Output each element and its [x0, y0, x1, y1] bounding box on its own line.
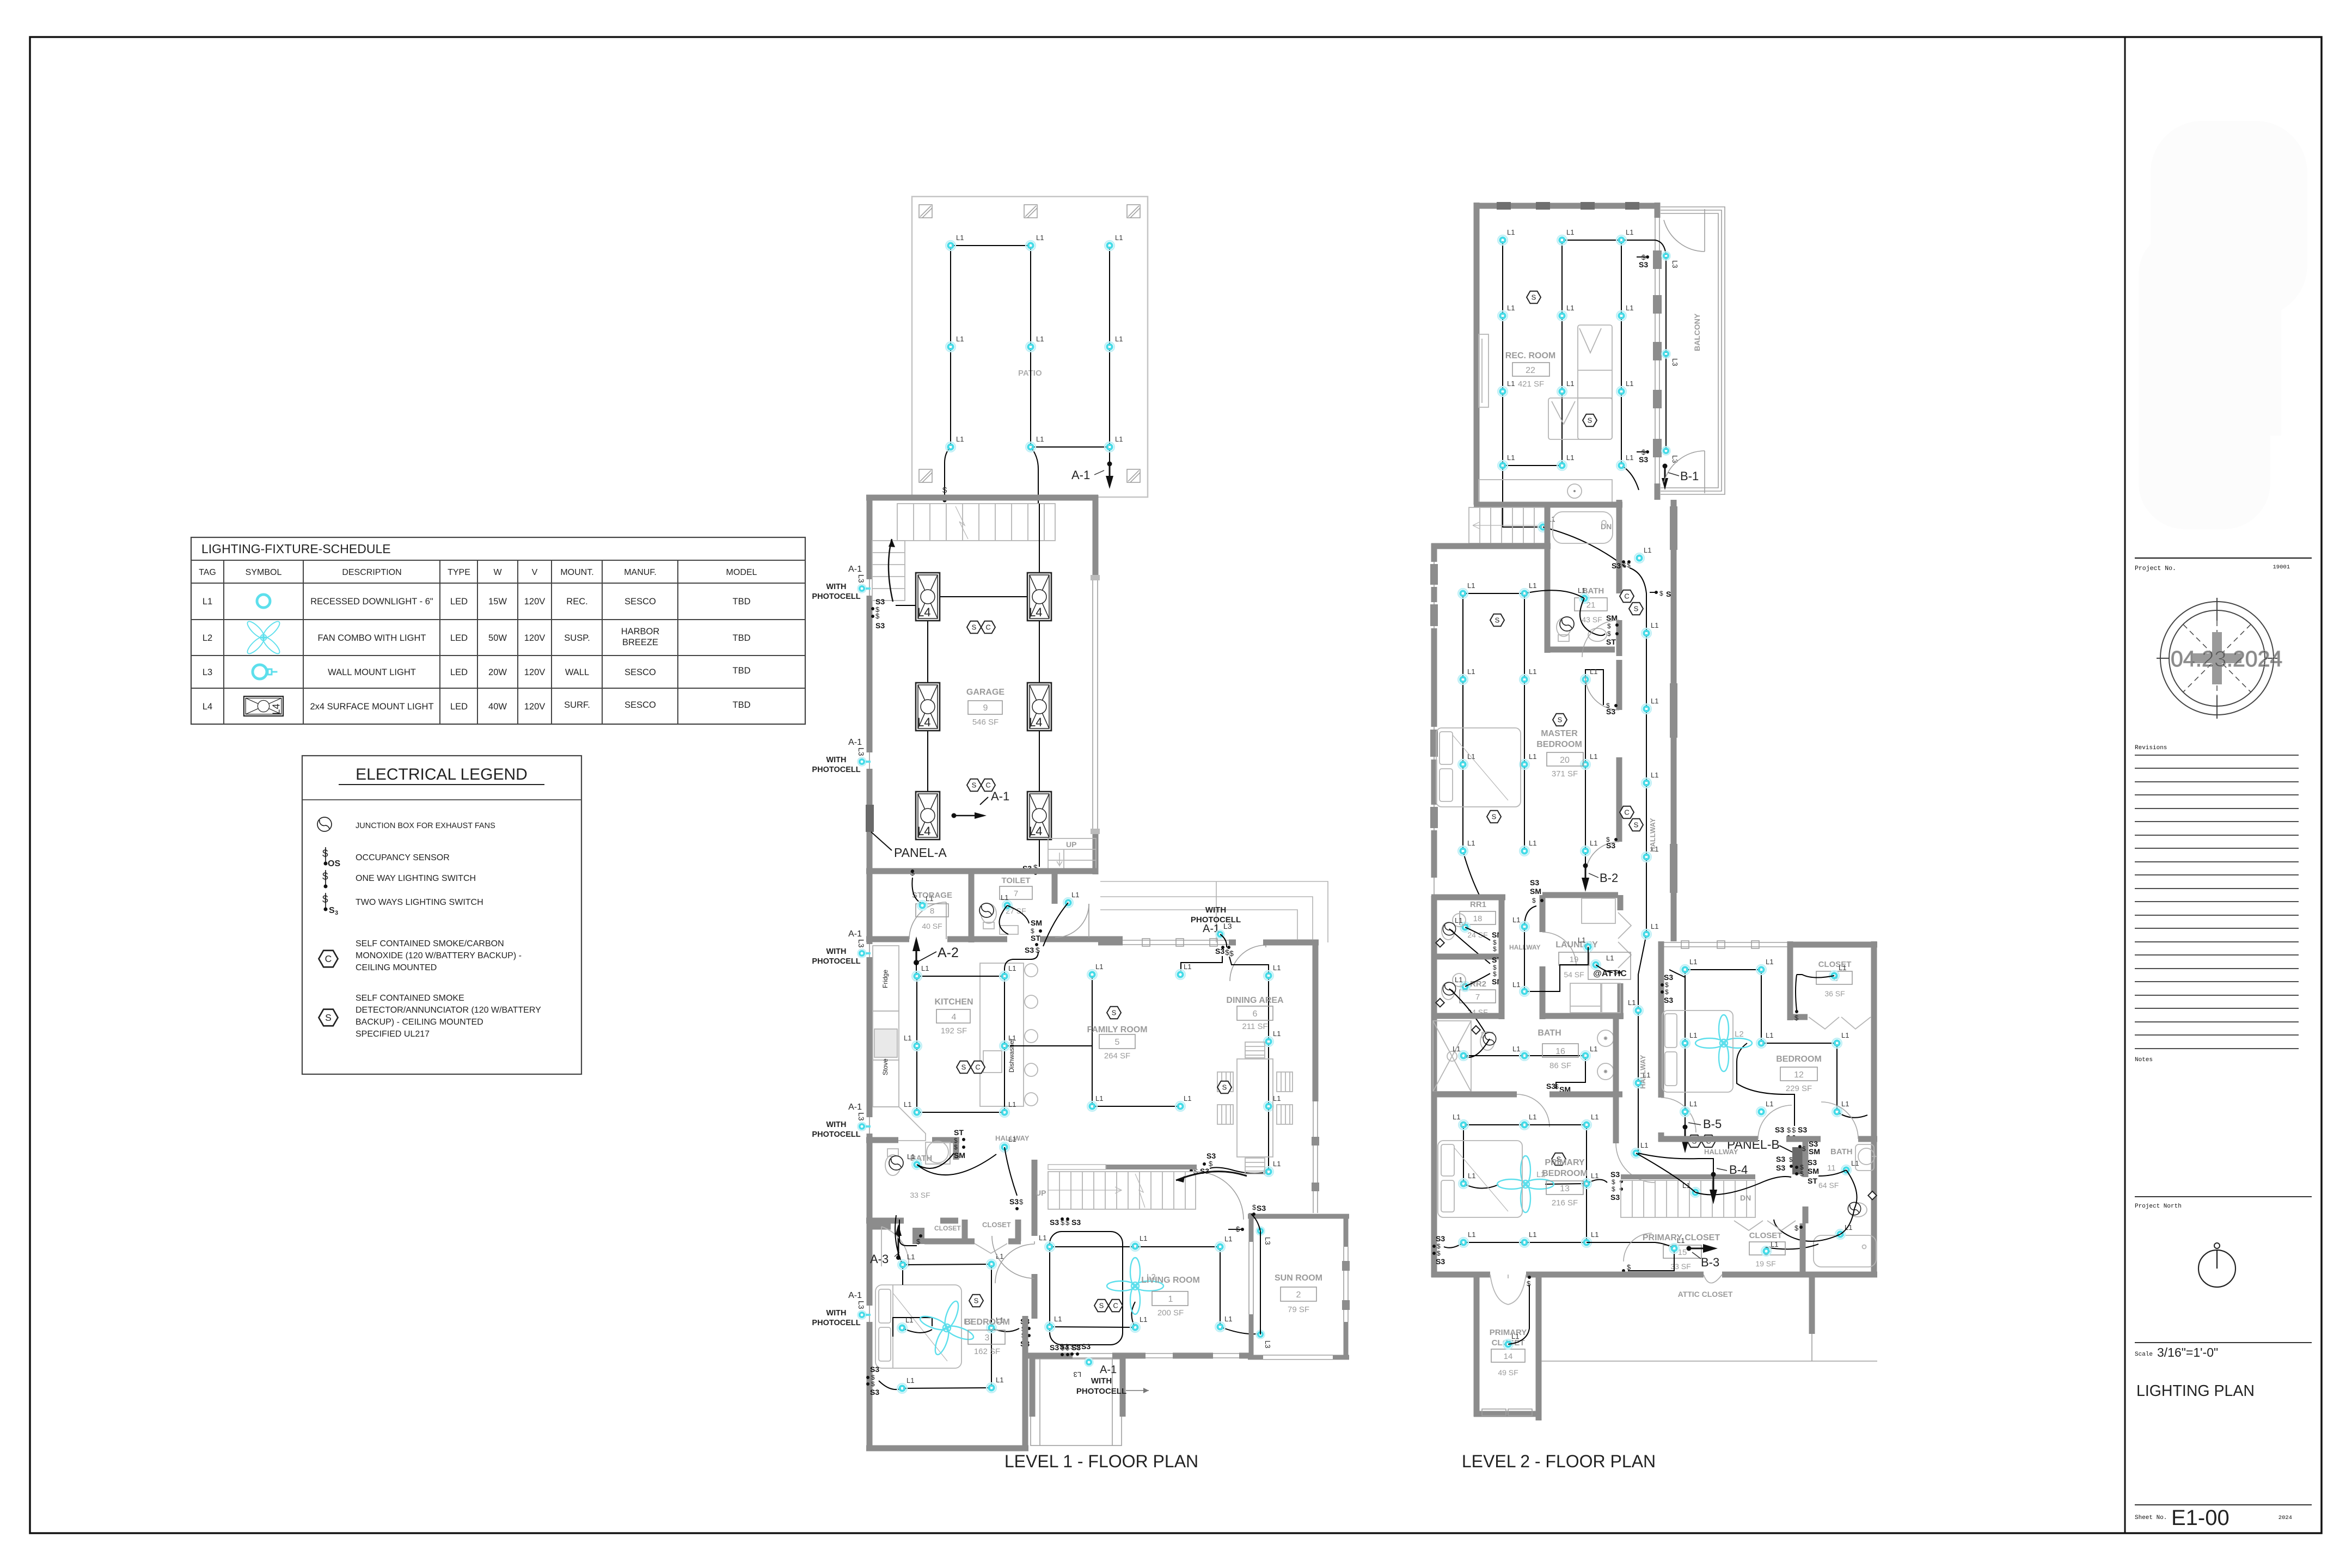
svg-text:L1: L1 [926, 895, 933, 903]
svg-text:L3: L3 [1074, 1370, 1081, 1379]
svg-text:7: 7 [1014, 889, 1018, 898]
svg-text:SM: SM [1809, 1147, 1820, 1156]
svg-text:79 SF: 79 SF [1288, 1305, 1309, 1314]
svg-text:SESCO: SESCO [624, 597, 656, 607]
svg-text:L3: L3 [1671, 455, 1679, 463]
svg-text:B-5: B-5 [1703, 1117, 1722, 1131]
svg-text:A-1: A-1 [1071, 468, 1090, 482]
svg-text:421 SF: 421 SF [1518, 379, 1544, 389]
svg-text:MASTER: MASTER [1541, 729, 1578, 738]
svg-text:BALCONY: BALCONY [1693, 313, 1701, 351]
svg-text:120V: 120V [524, 633, 546, 643]
svg-text:MANUF.: MANUF. [624, 568, 657, 577]
svg-text:L1: L1 [1036, 234, 1044, 242]
svg-text:$: $ [1607, 630, 1611, 638]
svg-text:L1: L1 [1468, 1230, 1475, 1239]
svg-text:Revisions: Revisions [2135, 745, 2167, 751]
svg-text:L1: L1 [956, 335, 964, 343]
svg-text:$: $ [1606, 836, 1610, 843]
svg-text:BATH: BATH [1538, 1028, 1561, 1038]
svg-text:L1: L1 [1511, 1332, 1519, 1340]
svg-text:S3: S3 [1664, 973, 1673, 982]
svg-text:L3: L3 [1671, 260, 1679, 268]
svg-text:TBD: TBD [733, 597, 751, 607]
svg-text:40 SF: 40 SF [922, 922, 942, 930]
svg-text:TBD: TBD [733, 633, 751, 643]
svg-text:WITH: WITH [826, 756, 846, 764]
svg-text:$: $ [1019, 1198, 1024, 1206]
svg-text:WITH: WITH [826, 1120, 846, 1129]
svg-text:S3: S3 [875, 597, 885, 606]
svg-text:16: 16 [1555, 1047, 1565, 1056]
svg-text:LED: LED [450, 633, 468, 643]
svg-text:B-4: B-4 [1729, 1163, 1748, 1177]
svg-text:$: $ [1437, 1249, 1441, 1257]
svg-text:L1: L1 [1529, 752, 1536, 761]
svg-text:L1: L1 [1455, 916, 1462, 924]
svg-text:MODEL: MODEL [726, 568, 757, 577]
svg-text:546 SF: 546 SF [972, 718, 999, 727]
svg-text:SYMBOL: SYMBOL [246, 568, 282, 577]
svg-text:$: $ [1209, 1160, 1213, 1168]
svg-text:L1: L1 [1036, 335, 1044, 343]
svg-text:SESCO: SESCO [624, 700, 656, 710]
svg-text:L1: L1 [956, 435, 964, 443]
svg-text:DINING AREA: DINING AREA [1226, 996, 1284, 1005]
svg-text:L1: L1 [1529, 667, 1536, 676]
svg-text:A-1: A-1 [848, 738, 862, 747]
svg-text:DN: DN [1740, 1193, 1751, 1202]
svg-text:JUNCTION BOX FOR EXHAUST FANS: JUNCTION BOX FOR EXHAUST FANS [356, 822, 495, 830]
svg-text:229 SF: 229 SF [1786, 1084, 1812, 1093]
svg-text:S3: S3 [1436, 1257, 1445, 1266]
svg-text:S3: S3 [1257, 1204, 1266, 1212]
svg-text:BEDROOM: BEDROOM [1536, 740, 1582, 749]
svg-text:40W: 40W [488, 702, 507, 712]
svg-text:L1: L1 [1841, 1031, 1849, 1039]
svg-text:L3: L3 [857, 1301, 866, 1309]
svg-text:$: $ [1612, 1178, 1615, 1186]
svg-text:8: 8 [930, 906, 934, 916]
svg-text:L1: L1 [1467, 581, 1475, 590]
svg-text:SM: SM [1530, 887, 1541, 896]
svg-text:BEDROOM: BEDROOM [1542, 1169, 1588, 1178]
svg-text:L1: L1 [1115, 234, 1123, 242]
svg-text:ST: ST [1031, 934, 1040, 942]
svg-text:L2: L2 [203, 633, 212, 643]
svg-text:S3: S3 [1025, 946, 1034, 954]
svg-text:L3: L3 [857, 748, 866, 756]
svg-text:$: $ [1794, 1014, 1799, 1022]
svg-text:$: $ [1612, 1185, 1615, 1193]
svg-text:20W: 20W [488, 667, 507, 677]
svg-text:1: 1 [1168, 1295, 1173, 1304]
svg-text:$: $ [1627, 1263, 1631, 1271]
svg-text:L1: L1 [1626, 379, 1633, 388]
svg-text:L1: L1 [1689, 1100, 1697, 1108]
svg-text:ST: ST [1606, 638, 1616, 646]
svg-text:L1: L1 [1224, 1235, 1232, 1243]
svg-text:162 SF: 162 SF [974, 1347, 1000, 1356]
svg-text:L1: L1 [1651, 621, 1658, 629]
svg-text:L1: L1 [1766, 958, 1773, 966]
svg-text:REC.: REC. [566, 597, 587, 607]
svg-text:E1-00: E1-00 [2171, 1506, 2229, 1530]
svg-text:PHOTOCELL: PHOTOCELL [1076, 1387, 1126, 1396]
svg-text:L1: L1 [1507, 454, 1515, 462]
svg-text:$: $ [1614, 969, 1618, 976]
svg-text:L1: L1 [1644, 546, 1651, 554]
svg-text:L3: L3 [1223, 922, 1232, 930]
svg-text:$: $ [1802, 1145, 1806, 1153]
svg-text:WITH: WITH [826, 1309, 846, 1318]
svg-text:BREEZE: BREEZE [622, 638, 658, 647]
svg-text:S3: S3 [1610, 1193, 1620, 1202]
svg-text:L1: L1 [1507, 379, 1515, 388]
svg-text:HALLWAY: HALLWAY [1639, 1055, 1647, 1089]
svg-text:$: $ [1532, 897, 1536, 904]
svg-text:PHOTOCELL: PHOTOCELL [812, 1319, 860, 1327]
svg-text:TOILET: TOILET [1001, 876, 1030, 885]
svg-text:L1: L1 [1766, 1031, 1773, 1039]
svg-text:RECESSED DOWNLIGHT - 6": RECESSED DOWNLIGHT - 6" [310, 597, 433, 607]
svg-text:L1: L1 [1273, 1030, 1281, 1038]
svg-text:$: $ [1794, 1224, 1799, 1232]
svg-text:S3: S3 [1071, 1218, 1081, 1227]
svg-text:S3: S3 [1612, 561, 1621, 570]
svg-text:22: 22 [1526, 366, 1535, 375]
svg-text:20: 20 [1560, 756, 1570, 765]
svg-text:L1: L1 [1689, 958, 1697, 966]
svg-text:192 SF: 192 SF [941, 1026, 967, 1036]
svg-text:LED: LED [450, 667, 468, 677]
svg-text:L1: L1 [1008, 1100, 1016, 1108]
svg-text:L1: L1 [1591, 1230, 1598, 1239]
svg-text:L1: L1 [1689, 1031, 1697, 1039]
svg-text:L1: L1 [1512, 916, 1520, 924]
svg-text:WITH: WITH [1091, 1376, 1112, 1386]
svg-text:A-1: A-1 [848, 1291, 862, 1300]
svg-text:L1: L1 [905, 1316, 913, 1324]
svg-text:S3: S3 [870, 1388, 879, 1396]
svg-text:B-2: B-2 [1600, 871, 1618, 885]
svg-text:L1: L1 [1008, 964, 1016, 972]
svg-text:L1: L1 [1008, 1135, 1016, 1143]
svg-text:L1: L1 [1140, 1315, 1147, 1324]
svg-text:L1: L1 [1529, 1230, 1536, 1239]
svg-text:RR1: RR1 [1470, 900, 1486, 909]
svg-text:L1: L1 [1453, 1045, 1460, 1053]
svg-text:L1: L1 [1771, 1240, 1778, 1248]
svg-text:L1: L1 [1008, 1034, 1016, 1042]
svg-text:S3: S3 [1776, 1155, 1785, 1163]
svg-text:5: 5 [1115, 1038, 1120, 1047]
svg-text:L1: L1 [956, 234, 964, 242]
svg-text:PHOTOCELL: PHOTOCELL [812, 957, 860, 966]
svg-text:12: 12 [1794, 1070, 1804, 1080]
svg-text:L1: L1 [1529, 839, 1536, 847]
svg-text:B-1: B-1 [1680, 469, 1699, 483]
svg-text:S3: S3 [870, 1365, 879, 1374]
svg-text:S3: S3 [1436, 1234, 1445, 1243]
svg-text:14: 14 [1504, 1352, 1513, 1361]
svg-text:L1: L1 [907, 1253, 915, 1261]
svg-text:LED: LED [450, 702, 468, 712]
svg-text:L1: L1 [1590, 752, 1597, 761]
svg-text:L1: L1 [1071, 891, 1079, 899]
svg-text:CEILING MOUNTED: CEILING MOUNTED [356, 963, 437, 972]
svg-text:13: 13 [1560, 1184, 1570, 1193]
svg-text:$: $ [875, 612, 880, 620]
svg-text:L1: L1 [906, 1376, 914, 1385]
svg-text:L1: L1 [904, 1100, 911, 1108]
svg-text:L1: L1 [1651, 771, 1658, 779]
svg-text:L1: L1 [1095, 1094, 1103, 1102]
svg-text:PHOTOCELL: PHOTOCELL [812, 592, 860, 601]
svg-text:L1: L1 [1529, 581, 1536, 590]
svg-text:$: $ [322, 871, 328, 883]
svg-text:L1: L1 [203, 597, 212, 607]
svg-text:GARAGE: GARAGE [966, 688, 1005, 697]
svg-text:A-1: A-1 [1100, 1364, 1117, 1376]
svg-text:PATIO: PATIO [1018, 369, 1042, 378]
svg-text:$: $ [1437, 1242, 1441, 1250]
svg-text:L1: L1 [1590, 667, 1597, 676]
svg-text:LED: LED [450, 597, 468, 607]
svg-text:3: 3 [985, 1333, 990, 1343]
svg-text:CLOSET: CLOSET [934, 1224, 961, 1232]
svg-text:L1: L1 [1273, 1094, 1281, 1102]
svg-text:211 SF: 211 SF [1242, 1022, 1267, 1031]
svg-text:HALLWAY: HALLWAY [1649, 818, 1657, 852]
svg-text:L1: L1 [1273, 1160, 1281, 1168]
svg-text:120V: 120V [524, 702, 546, 712]
svg-text:A-1: A-1 [991, 789, 1009, 803]
svg-text:ST: ST [954, 1128, 964, 1137]
svg-text:S3: S3 [1639, 260, 1648, 269]
svg-text:CLOSET: CLOSET [982, 1221, 1011, 1229]
svg-text:L1: L1 [1626, 454, 1633, 462]
svg-text:L1: L1 [1590, 839, 1597, 847]
svg-text:L1: L1 [1766, 1100, 1773, 1108]
svg-text:V: V [532, 568, 538, 577]
svg-text:54 SF: 54 SF [1564, 970, 1584, 979]
svg-text:L1: L1 [1095, 963, 1103, 971]
svg-text:L1: L1 [1529, 1113, 1536, 1121]
svg-text:$: $ [1493, 970, 1497, 978]
svg-text:A-2: A-2 [938, 945, 959, 960]
svg-text:MOUNT.: MOUNT. [560, 568, 593, 577]
svg-text:$: $ [942, 486, 947, 495]
svg-text:S3: S3 [1808, 1158, 1817, 1167]
svg-text:L1: L1 [1591, 1172, 1598, 1180]
svg-text:L1: L1 [1841, 1100, 1849, 1108]
svg-text:LIGHTING PLAN: LIGHTING PLAN [2136, 1382, 2255, 1400]
svg-text:A-1: A-1 [848, 1102, 862, 1112]
svg-text:18: 18 [1473, 914, 1483, 923]
svg-text:L3: L3 [857, 1112, 866, 1121]
svg-text:L1: L1 [1628, 999, 1636, 1007]
svg-text:19: 19 [1570, 955, 1579, 964]
svg-text:DESCRIPTION: DESCRIPTION [342, 568, 401, 577]
svg-text:LIGHTING-FIXTURE-SCHEDULE: LIGHTING-FIXTURE-SCHEDULE [201, 542, 391, 556]
svg-text:L1: L1 [1677, 1236, 1685, 1245]
svg-text:$: $ [1665, 981, 1669, 989]
svg-text:DETECTOR/ANNUNCIATOR (120 W/BA: DETECTOR/ANNUNCIATOR (120 W/BATTERY [356, 1006, 541, 1015]
svg-text:L3: L3 [857, 574, 866, 583]
svg-text:$: $ [1493, 945, 1497, 953]
svg-text:$: $ [1665, 988, 1669, 996]
svg-text:S3: S3 [1050, 1218, 1059, 1227]
svg-text:ELECTRICAL LEGEND: ELECTRICAL LEGEND [356, 765, 528, 783]
svg-text:TBD: TBD [733, 666, 751, 676]
svg-text:LEVEL 1 - FLOOR PLAN: LEVEL 1 - FLOOR PLAN [1004, 1451, 1198, 1471]
svg-text:L1: L1 [1001, 893, 1008, 902]
svg-text:LEVEL 2 - FLOOR PLAN: LEVEL 2 - FLOOR PLAN [1462, 1451, 1656, 1471]
svg-text:Project North: Project North [2135, 1203, 2182, 1210]
svg-text:43 SF: 43 SF [1582, 615, 1602, 624]
svg-text:Fridge: Fridge [881, 970, 889, 988]
svg-text:FAMILY ROOM: FAMILY ROOM [1087, 1025, 1147, 1034]
svg-text:9: 9 [983, 703, 988, 713]
svg-text:Stove: Stove [881, 1058, 889, 1075]
svg-text:L1: L1 [1467, 667, 1475, 676]
svg-text:15W: 15W [488, 597, 507, 607]
svg-text:SESCO: SESCO [624, 667, 656, 677]
svg-text:WALL: WALL [565, 667, 589, 677]
svg-text:$: $ [1555, 1083, 1559, 1091]
svg-text:Scale: Scale [2135, 1351, 2153, 1358]
svg-text:PRIMARY: PRIMARY [1490, 1328, 1527, 1337]
svg-text:WITH: WITH [1205, 905, 1226, 915]
svg-text:S3: S3 [1200, 1167, 1209, 1175]
svg-text:L1: L1 [1468, 1172, 1475, 1180]
svg-text:$: $ [916, 1238, 921, 1246]
svg-text:WITH: WITH [826, 583, 846, 591]
svg-text:A-1: A-1 [1203, 923, 1220, 935]
svg-text:$: $ [1070, 1343, 1075, 1351]
svg-text:L1: L1 [1566, 379, 1574, 388]
svg-text:S3: S3 [1546, 1082, 1555, 1091]
svg-text:L1: L1 [1054, 1315, 1062, 1323]
svg-text:PHOTOCELL: PHOTOCELL [812, 1130, 860, 1139]
svg-text:120V: 120V [524, 597, 546, 607]
svg-text:WITH: WITH [826, 947, 846, 956]
svg-text:ATTIC CLOSET: ATTIC CLOSET [1678, 1290, 1733, 1298]
svg-text:ST: ST [1808, 1177, 1817, 1185]
svg-text:CLOSET: CLOSET [1749, 1231, 1783, 1240]
svg-text:L3: L3 [1264, 1340, 1272, 1348]
svg-text:7: 7 [1475, 993, 1480, 1002]
svg-text:S3: S3 [1206, 1151, 1216, 1160]
svg-text:L1: L1 [1566, 228, 1574, 236]
svg-text:L1: L1 [1140, 1234, 1147, 1242]
svg-text:WALL MOUNT LIGHT: WALL MOUNT LIGHT [328, 667, 416, 677]
svg-text:SPECIFIED UL217: SPECIFIED UL217 [356, 1030, 430, 1039]
svg-text:REC. ROOM: REC. ROOM [1505, 351, 1555, 360]
svg-text:$: $ [322, 894, 328, 905]
svg-text:L1: L1 [1590, 1045, 1597, 1053]
svg-text:L3: L3 [857, 939, 866, 948]
svg-text:A-3: A-3 [870, 1252, 889, 1266]
svg-text:S3: S3 [1639, 455, 1648, 464]
svg-text:S3: S3 [1081, 1342, 1091, 1351]
svg-text:TWO WAYS LIGHTING SWITCH: TWO WAYS LIGHTING SWITCH [356, 898, 483, 907]
svg-text:SUSP.: SUSP. [564, 633, 590, 643]
svg-text:L1: L1 [996, 1376, 1003, 1384]
svg-text:$: $ [1787, 1126, 1791, 1134]
svg-text:L1: L1 [1184, 963, 1191, 971]
svg-text:OCCUPANCY SENSOR: OCCUPANCY SENSOR [356, 853, 450, 862]
svg-text:$: $ [1225, 948, 1229, 957]
svg-text:TYPE: TYPE [448, 568, 470, 577]
svg-text:04.23.2024: 04.23.2024 [2171, 646, 2282, 671]
svg-text:L1: L1 [1453, 1113, 1460, 1121]
svg-text:6: 6 [1253, 1009, 1258, 1019]
svg-text:S3: S3 [1610, 1170, 1620, 1179]
svg-text:Sheet No.: Sheet No. [2135, 1515, 2167, 1521]
svg-text:49 SF: 49 SF [1498, 1368, 1518, 1377]
svg-text:Project No.: Project No. [2135, 565, 2176, 572]
svg-text:Notes: Notes [2135, 1057, 2153, 1063]
svg-text:W: W [493, 568, 502, 577]
svg-text:$: $ [1606, 702, 1610, 709]
svg-text:RR2: RR2 [1470, 979, 1486, 989]
svg-text:216 SF: 216 SF [1552, 1198, 1578, 1208]
svg-text:$: $ [1229, 949, 1234, 958]
svg-text:371 SF: 371 SF [1552, 769, 1578, 779]
svg-text:$: $ [322, 848, 328, 860]
svg-text:L3: L3 [203, 667, 212, 677]
svg-text:L1: L1 [1651, 922, 1658, 930]
svg-text:S3: S3 [1050, 1343, 1059, 1352]
svg-text:L1: L1 [1115, 435, 1123, 443]
svg-text:L1: L1 [1507, 304, 1515, 312]
svg-text:86 SF: 86 SF [1549, 1061, 1571, 1070]
svg-text:S3: S3 [1775, 1125, 1784, 1134]
svg-text:$: $ [1075, 1343, 1080, 1351]
svg-text:L1: L1 [1224, 1315, 1232, 1323]
svg-text:OS: OS [328, 859, 340, 868]
svg-text:S3: S3 [1776, 1163, 1785, 1172]
svg-text:PANEL-A: PANEL-A [894, 846, 947, 860]
svg-text:4: 4 [952, 1013, 957, 1022]
svg-text:SUN ROOM: SUN ROOM [1275, 1273, 1322, 1283]
svg-text:24 SF: 24 SF [1467, 930, 1487, 939]
svg-text:L1: L1 [1606, 954, 1614, 962]
svg-text:33 SF: 33 SF [1670, 1262, 1690, 1271]
svg-text:$: $ [1792, 1126, 1796, 1134]
svg-text:L1: L1 [1566, 304, 1574, 312]
svg-text:120V: 120V [524, 667, 546, 677]
svg-text:$: $ [1800, 1170, 1804, 1178]
svg-text:L1: L1 [1839, 964, 1846, 972]
svg-text:B-3: B-3 [1701, 1255, 1719, 1269]
svg-text:$: $ [1659, 590, 1663, 597]
svg-text:2: 2 [1296, 1290, 1301, 1300]
svg-text:19001: 19001 [2273, 564, 2290, 571]
svg-text:L3: L3 [1264, 1237, 1272, 1245]
svg-text:19 SF: 19 SF [1755, 1259, 1775, 1268]
svg-text:TAG: TAG [199, 568, 216, 577]
svg-text:A-1: A-1 [848, 929, 862, 939]
svg-text:L1: L1 [1626, 228, 1633, 236]
svg-text:S3: S3 [1059, 1342, 1069, 1351]
svg-text:A-1: A-1 [848, 565, 862, 574]
svg-text:MONOXIDE (120 W/BATTERY BACKUP: MONOXIDE (120 W/BATTERY BACKUP) - [356, 951, 522, 960]
svg-text:HARBOR: HARBOR [621, 627, 660, 636]
svg-text:$: $ [871, 1380, 875, 1388]
